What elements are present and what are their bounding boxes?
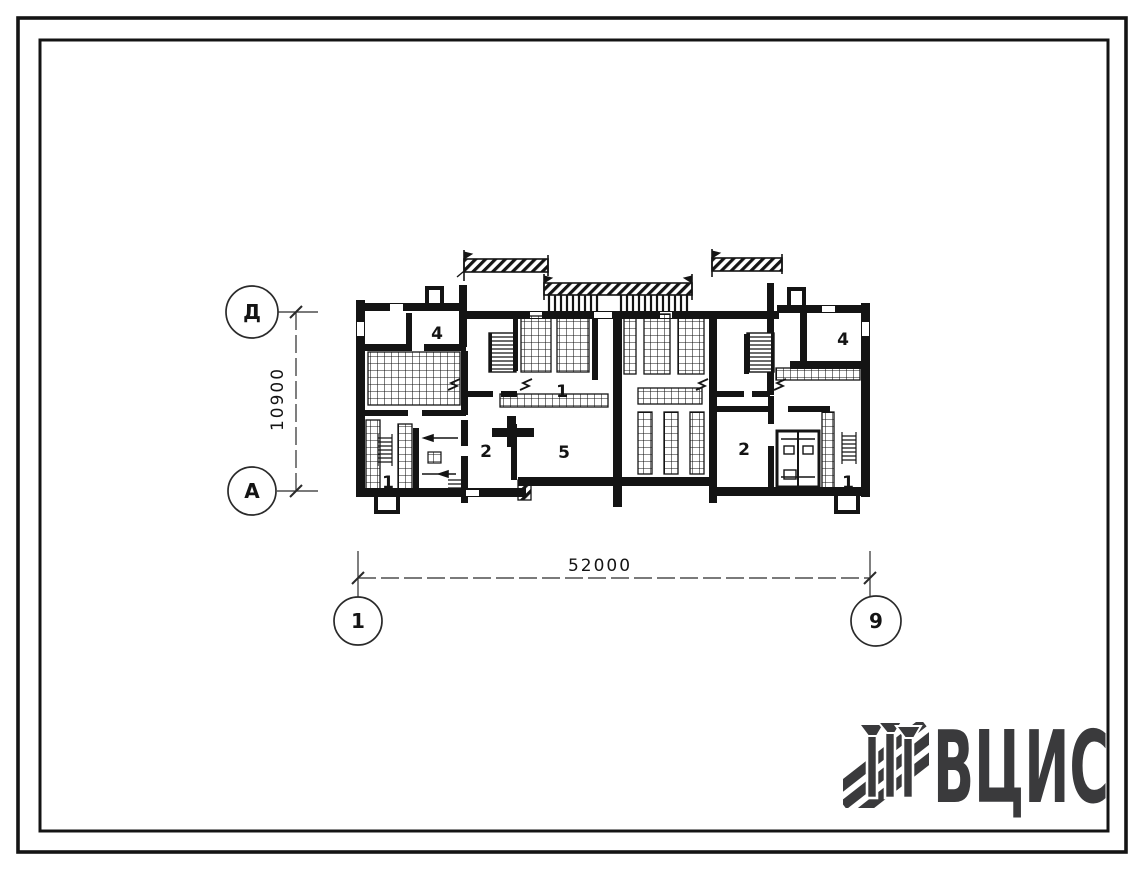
room-label: 2 bbox=[480, 442, 492, 462]
drawing-sheet: 4 1 2 5 1 2 4 1 52000 10900 Д А 1 bbox=[0, 0, 1139, 869]
stair-right bbox=[747, 333, 774, 372]
room-label: 4 bbox=[431, 324, 443, 344]
balcony-rails bbox=[457, 249, 782, 311]
hatched-columns-logo-icon bbox=[831, 719, 947, 822]
overall-width-dimension: 52000 bbox=[568, 556, 632, 576]
axis-label-col-start: 1 bbox=[351, 609, 365, 633]
overall-depth-dimension: 10900 bbox=[268, 367, 288, 431]
logo: ВЦИС bbox=[831, 709, 1109, 826]
stair-arrows-left bbox=[422, 435, 462, 488]
axis-label-top-row: Д bbox=[243, 300, 261, 324]
room-label: 1 bbox=[382, 473, 394, 493]
room-label: 5 bbox=[558, 443, 570, 463]
stair-left bbox=[489, 333, 516, 372]
room-label: 2 bbox=[738, 440, 750, 460]
balcony-posts bbox=[549, 295, 687, 311]
axis-label-col-end: 9 bbox=[869, 609, 883, 633]
floor-plan-drawing: 4 1 2 5 1 2 4 1 52000 10900 Д А 1 bbox=[0, 0, 1139, 869]
ladder-right bbox=[842, 432, 856, 464]
axis-label-bottom-row: А bbox=[244, 479, 260, 503]
logo-text: ВЦИС bbox=[933, 709, 1109, 826]
bath-room-right bbox=[777, 431, 819, 487]
room-label: 4 bbox=[837, 330, 849, 350]
room-label: 1 bbox=[556, 382, 568, 402]
room-label: 1 bbox=[842, 473, 854, 493]
